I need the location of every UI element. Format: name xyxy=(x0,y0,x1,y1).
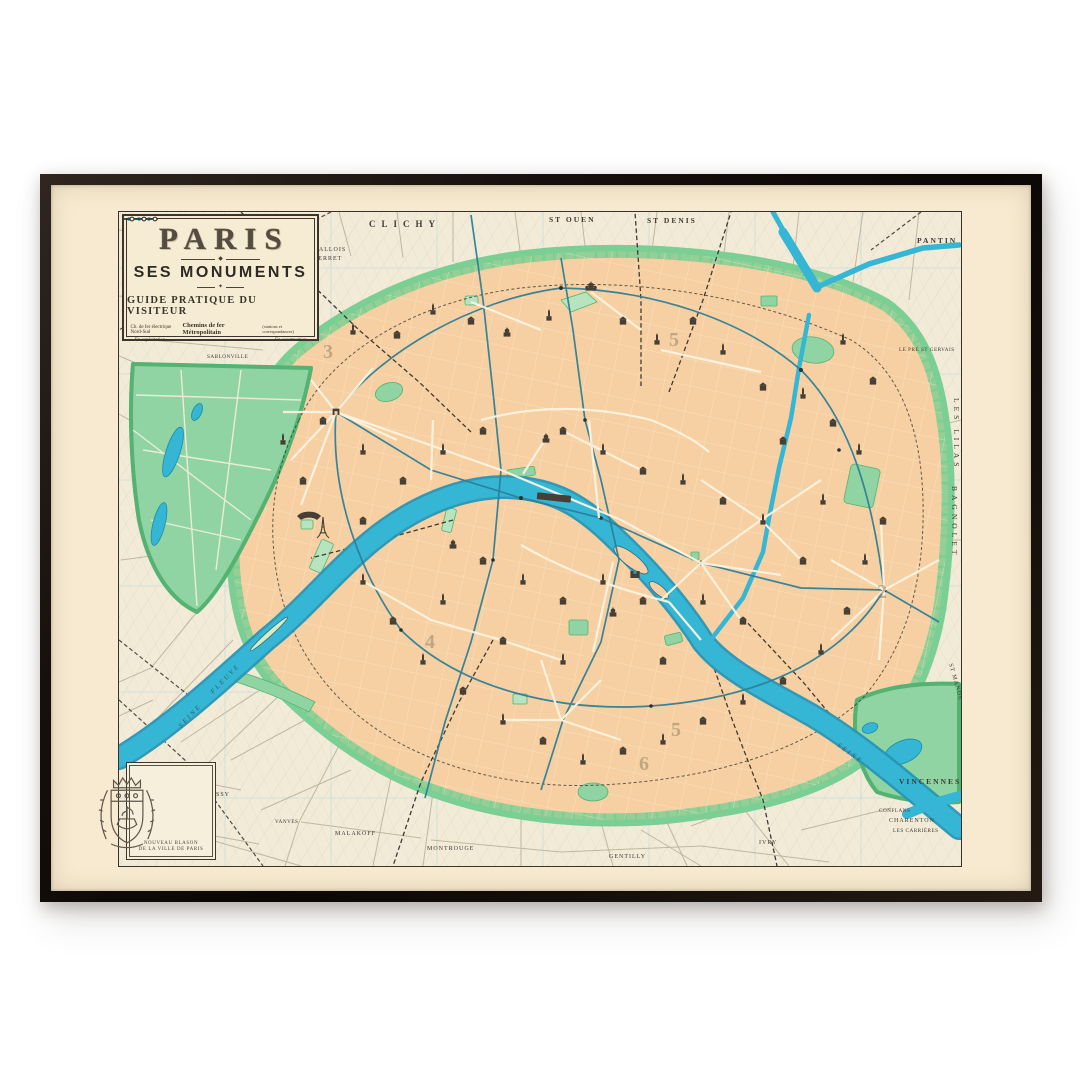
label-le-pre: LE PRÉ ST GERVAIS xyxy=(899,345,955,353)
svg-text:4: 4 xyxy=(425,631,435,653)
label-les-lilas: LES LILAS xyxy=(952,398,961,470)
coat-of-arms-inset: NOUVEAU BLASON DE LA VILLE DE PARIS xyxy=(126,762,216,860)
label-malakoff: MALAKOFF xyxy=(335,831,376,837)
svg-text:2: 2 xyxy=(877,581,887,603)
svg-text:6: 6 xyxy=(639,753,649,775)
label-st-ouen: ST OUEN xyxy=(549,215,596,224)
svg-text:5: 5 xyxy=(671,719,681,741)
label-clichy: CLICHY xyxy=(369,219,441,229)
svg-text:5: 5 xyxy=(669,329,679,351)
label-montrouge: MONTROUGE xyxy=(427,846,474,852)
title-cartouche: PARIS ◆ SES MONUMENTS ✦ GUIDE PRATIQUE D… xyxy=(122,214,319,341)
in-construction-symbol xyxy=(124,216,317,339)
paris-map-poster: 3 5 2 5 6 4 CLICHY ST OUEN ST DENIS PANT… xyxy=(118,211,962,867)
label-vincennes: VINCENNES xyxy=(899,777,961,786)
label-vanves: VANVES xyxy=(275,819,298,825)
label-conflans: CONFLANS xyxy=(879,808,910,814)
label-gentilly: GENTILLY xyxy=(609,854,646,860)
label-sablonville: SABLONVILLE xyxy=(207,354,248,360)
label-pantin: PANTIN xyxy=(917,236,957,245)
picture-frame: 3 5 2 5 6 4 CLICHY ST OUEN ST DENIS PANT… xyxy=(40,174,1042,902)
label-charenton: CHARENTON xyxy=(889,818,935,824)
mat-board: 3 5 2 5 6 4 CLICHY ST OUEN ST DENIS PANT… xyxy=(51,185,1031,891)
map-legend: Ch. de fer électrique Nord-Sud Chemins d… xyxy=(131,321,311,343)
label-bagnolet: BAGNOLET xyxy=(950,486,959,558)
label-les-carrieres: LES CARRIÈRES xyxy=(893,826,939,834)
label-st-denis: ST DENIS xyxy=(647,216,697,225)
label-ivry: IVRY xyxy=(759,840,777,846)
product-photo: 3 5 2 5 6 4 CLICHY ST OUEN ST DENIS PANT… xyxy=(0,0,1080,1080)
paris-coat-of-arms xyxy=(83,763,171,859)
svg-text:3: 3 xyxy=(323,341,333,363)
